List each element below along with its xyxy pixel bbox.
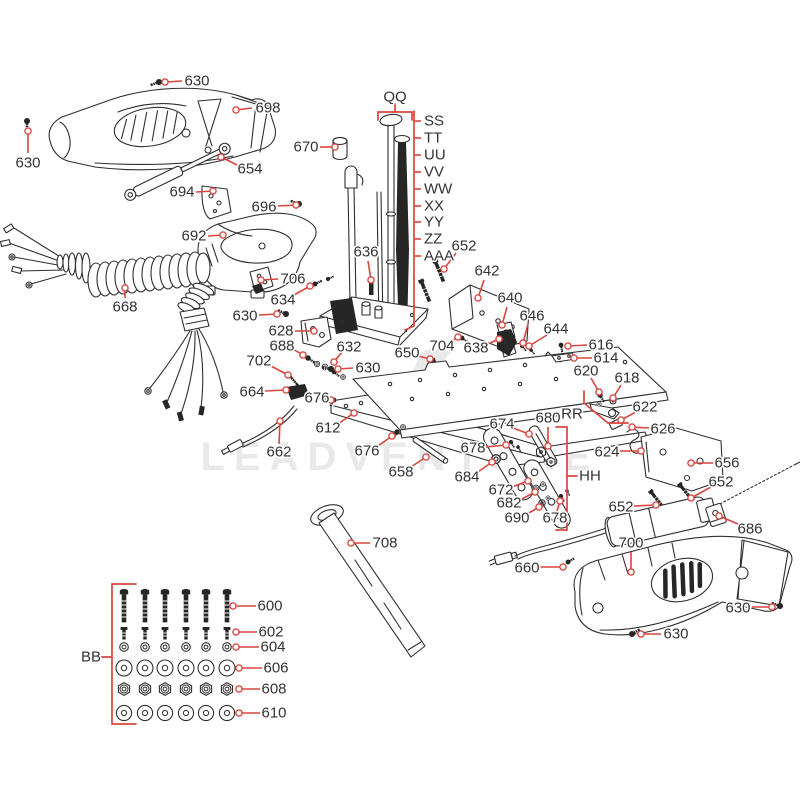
callout-670: 670 xyxy=(293,139,338,156)
leader-dot xyxy=(716,513,722,519)
part-number-label: 636 xyxy=(353,244,378,261)
letter-label: UU xyxy=(424,147,446,164)
leader-dot xyxy=(489,459,495,465)
leader-dot xyxy=(236,665,242,671)
leader-dot xyxy=(526,431,532,437)
part-number-label: 696 xyxy=(251,199,276,216)
part-number-label: 662 xyxy=(266,444,291,461)
leader-dot xyxy=(331,359,337,365)
leader-dot xyxy=(25,128,31,134)
leader-dot xyxy=(688,460,694,466)
callout-606: 606 xyxy=(236,660,289,677)
callout-608: 608 xyxy=(236,681,287,698)
part-number-label: 690 xyxy=(504,510,529,527)
part-number-label: 654 xyxy=(237,161,262,178)
part-number-label: 620 xyxy=(573,363,598,380)
part-number-label: 702 xyxy=(246,353,271,370)
leader-dot xyxy=(520,340,526,346)
leader-dot xyxy=(532,489,538,495)
part-number-label: 630 xyxy=(232,308,257,325)
leader-dot xyxy=(274,311,280,317)
part-number-label: 684 xyxy=(454,469,479,486)
part-number-label: 638 xyxy=(463,340,488,357)
letter-label: AAA xyxy=(424,248,454,265)
part-strap-708 xyxy=(308,501,425,657)
letter-label: VV xyxy=(424,164,444,181)
part-number-label: 624 xyxy=(594,444,619,461)
letter-ref-SS: SS xyxy=(414,113,444,130)
leader-dot xyxy=(348,540,354,546)
part-number-label: 656 xyxy=(714,455,739,472)
part-number-label: 658 xyxy=(388,464,413,481)
letter-label: SS xyxy=(424,113,444,130)
parts-diagram: LEADVENTURE xyxy=(0,0,800,800)
leader-dot xyxy=(233,107,239,113)
leader-dot xyxy=(441,266,447,272)
part-number-label: 632 xyxy=(336,339,361,356)
leader-dot xyxy=(427,356,433,362)
leader-dot xyxy=(335,366,341,372)
callout-600: 600 xyxy=(230,598,283,615)
group-label-HH: HH xyxy=(579,468,601,485)
leader-dot xyxy=(236,710,242,716)
part-number-label: 676 xyxy=(354,443,379,460)
leader-dot xyxy=(122,285,128,291)
letter-ref-UU: UU xyxy=(414,147,446,164)
leader-dot xyxy=(596,389,602,395)
part-number-label: 680 xyxy=(535,410,560,427)
part-number-label: 630 xyxy=(663,626,688,643)
leader-dot xyxy=(629,424,635,430)
part-number-label: 608 xyxy=(261,681,286,698)
part-number-label: 610 xyxy=(261,705,286,722)
leader-dot xyxy=(218,154,224,160)
leader-dot xyxy=(475,295,481,301)
leader-dot xyxy=(525,478,531,484)
callout-654: 654 xyxy=(218,154,263,178)
part-number-label: 678 xyxy=(460,440,485,457)
part-number-label: 700 xyxy=(618,535,643,552)
part-number-label: 706 xyxy=(280,271,305,288)
letter-label: WW xyxy=(424,181,453,198)
part-number-label: 652 xyxy=(451,238,476,255)
callout-660: 660 xyxy=(514,560,566,577)
part-number-label: 704 xyxy=(429,338,454,355)
part-number-label: 650 xyxy=(394,345,419,362)
leader-dot xyxy=(618,417,624,423)
part-number-label: 604 xyxy=(260,639,285,656)
leader-dot xyxy=(285,372,291,378)
part-number-label: 652 xyxy=(608,499,633,516)
part-number-label: 698 xyxy=(255,100,280,117)
letter-ref-ZZ: ZZ xyxy=(414,231,442,248)
part-number-label: 622 xyxy=(632,399,657,416)
leader-dot xyxy=(277,418,283,424)
letter-ref-WW: WW xyxy=(414,181,453,198)
callout-704: 704 xyxy=(429,334,461,355)
leader-dot xyxy=(233,644,239,650)
leader-dot xyxy=(557,498,563,504)
callout-636: 636 xyxy=(353,244,378,284)
part-number-label: 674 xyxy=(489,416,514,433)
group-label-RR: RR xyxy=(561,406,583,423)
part-number-label: 664 xyxy=(239,384,264,401)
callout-664: 664 xyxy=(239,384,289,401)
part-number-label: 630 xyxy=(355,360,380,377)
part-coil-cable xyxy=(1,224,228,421)
leader-dot xyxy=(389,433,395,439)
leader-dot xyxy=(233,629,239,635)
leader-dot xyxy=(300,352,306,358)
leader-dot xyxy=(210,188,216,194)
part-side-plate-656 xyxy=(641,428,723,509)
part-number-label: 634 xyxy=(270,292,295,309)
leader-dot xyxy=(536,504,542,510)
letter-ref-XX: XX xyxy=(414,198,444,215)
part-number-label: 708 xyxy=(372,535,397,552)
group-label-QQ: QQ xyxy=(383,89,406,106)
leader-dot xyxy=(455,334,461,340)
letter-label: ZZ xyxy=(424,231,442,248)
leader-dot xyxy=(526,343,532,349)
part-number-label: 642 xyxy=(474,263,499,280)
part-number-label: 630 xyxy=(184,73,209,90)
letter-ref-TT: TT xyxy=(414,130,442,147)
part-number-label: 606 xyxy=(263,660,288,677)
letter-ref-AAA: AAA xyxy=(414,248,454,265)
leader-dot xyxy=(311,328,317,334)
part-number-label: 618 xyxy=(614,370,639,387)
callout-688: 688 xyxy=(269,338,306,359)
leader-dot xyxy=(351,410,357,416)
leader-dot xyxy=(638,448,644,454)
part-number-label: 640 xyxy=(497,290,522,307)
leader-dot xyxy=(571,355,577,361)
part-number-label: 644 xyxy=(543,321,568,338)
part-number-label: 660 xyxy=(514,560,539,577)
part-number-label: 630 xyxy=(725,600,750,617)
callout-630: 630 xyxy=(162,73,210,90)
bb-bracket xyxy=(101,584,136,724)
part-number-label: 686 xyxy=(737,521,762,538)
leader-dot xyxy=(610,395,616,401)
part-number-label: 652 xyxy=(708,474,733,491)
letter-ref-YY: YY xyxy=(414,214,444,231)
callout-702: 702 xyxy=(246,353,291,379)
part-number-label: 630 xyxy=(15,155,40,172)
leader-dot xyxy=(162,79,168,85)
part-number-label: 626 xyxy=(650,421,675,438)
part-number-label: 676 xyxy=(304,390,329,407)
part-number-label: 612 xyxy=(315,420,340,437)
leader-dot xyxy=(638,631,644,637)
parts-diagram-canvas: LEADVENTURE xyxy=(0,0,800,800)
letter-label: YY xyxy=(424,214,444,231)
leader-dot xyxy=(368,277,374,283)
leader-dot xyxy=(220,232,226,238)
group-label-BB: BB xyxy=(81,649,101,666)
leader-dot xyxy=(496,336,502,342)
leader-dot xyxy=(332,144,338,150)
leader-dot xyxy=(653,502,659,508)
part-number-label: 668 xyxy=(112,299,137,316)
leader-dot xyxy=(545,443,551,449)
part-motor-housing xyxy=(574,536,792,638)
part-number-label: 600 xyxy=(257,598,282,615)
callout-624: 624 xyxy=(594,444,644,461)
leader-dot xyxy=(258,277,264,283)
leader-dot xyxy=(423,454,429,460)
letter-ref-VV: VV xyxy=(414,164,444,181)
leader-dot xyxy=(293,202,299,208)
part-number-label: 694 xyxy=(169,184,194,201)
part-top-side-cover xyxy=(49,88,275,170)
letter-label: TT xyxy=(424,130,442,147)
callout-676: 676 xyxy=(304,390,334,407)
part-hardware-kit xyxy=(116,589,235,721)
leader-dot xyxy=(499,322,505,328)
leader-dot xyxy=(565,343,571,349)
leader-dot xyxy=(236,686,242,692)
callout-630: 630 xyxy=(335,360,381,377)
letter-label: XX xyxy=(424,198,444,215)
callout-604: 604 xyxy=(233,639,286,656)
leader-dot xyxy=(628,569,634,575)
callout-630: 630 xyxy=(15,128,40,172)
part-number-label: 692 xyxy=(181,228,206,245)
leader-dot xyxy=(283,387,289,393)
leader-dot xyxy=(307,283,313,289)
leader-dot xyxy=(560,564,566,570)
part-number-label: 688 xyxy=(269,338,294,355)
part-number-label: 646 xyxy=(519,308,544,325)
callout-610: 610 xyxy=(236,705,287,722)
part-number-label: 678 xyxy=(542,510,567,527)
part-number-label: 670 xyxy=(293,139,318,156)
leader-dot xyxy=(503,442,509,448)
leader-dot xyxy=(230,603,236,609)
leader-dot xyxy=(688,495,694,501)
leader-dot xyxy=(769,604,775,610)
